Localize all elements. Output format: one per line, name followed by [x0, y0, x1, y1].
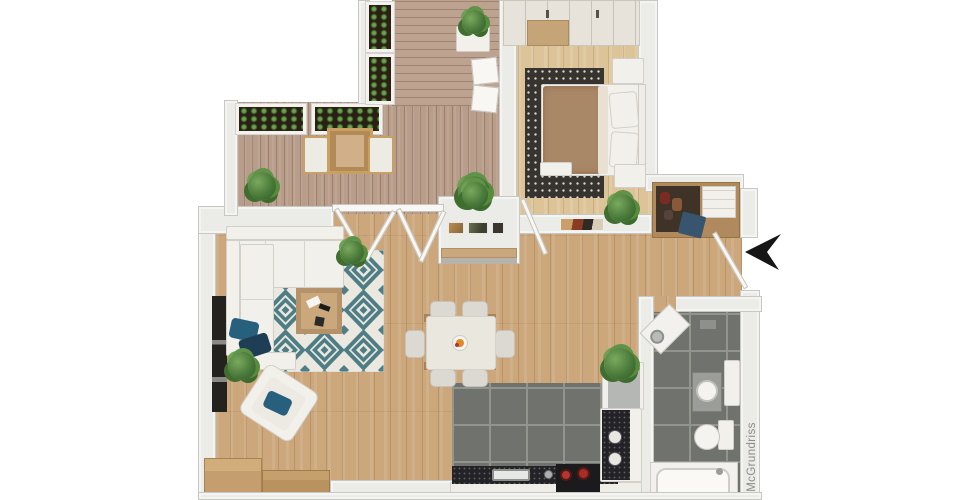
art-frame-2 — [468, 222, 488, 234]
art-frame-1 — [448, 222, 464, 234]
hall-plant — [608, 194, 636, 222]
bathroom-tall-cabinet — [724, 360, 740, 406]
toilet-bowl — [694, 424, 720, 450]
stove-pot-2 — [577, 467, 590, 480]
art-frame-3 — [492, 222, 504, 234]
washing-machine-drum — [647, 327, 667, 347]
bedroom-window-leaf-2 — [471, 85, 500, 114]
nightstand-top — [612, 58, 644, 84]
entry-clothes-1 — [660, 192, 670, 204]
planter-box-3 — [366, 2, 394, 52]
bed-headboard — [638, 84, 646, 176]
dining-chair-5 — [405, 330, 425, 358]
dining-chair-6 — [495, 330, 515, 358]
terrace-plant-1 — [248, 172, 276, 200]
dining-chair-4 — [462, 369, 488, 387]
stove-pot-1 — [560, 469, 572, 481]
north-arrow-icon — [744, 233, 782, 271]
living-plant-3 — [462, 182, 488, 208]
coffee-table — [296, 288, 342, 334]
toilet-tank — [718, 420, 734, 450]
vanity-basin — [696, 380, 718, 402]
tv-media-unit — [212, 296, 227, 412]
bathroom-shelf — [700, 320, 716, 329]
pot-lid — [544, 470, 553, 479]
kitchen-counter-right-top — [602, 410, 630, 480]
folding-door-rail — [332, 204, 444, 212]
counter-sink-bowl-2 — [608, 452, 622, 466]
hall-art-frame — [560, 218, 604, 231]
bottom-wall — [198, 492, 762, 500]
entry-clothes-3 — [664, 210, 673, 220]
wardrobe — [503, 0, 640, 46]
bed-sheet-fold — [598, 86, 608, 174]
partition-sideboard-base — [441, 258, 517, 264]
shoe-rack — [702, 186, 736, 218]
coffee-table-remote — [318, 303, 330, 311]
bistro-table — [327, 128, 373, 174]
sofa-back-horizontal — [226, 226, 344, 240]
coffee-table-item — [314, 316, 324, 326]
bistro-chair-right — [368, 136, 394, 174]
bistro-chair-left — [303, 136, 329, 174]
bed-duvet — [543, 86, 603, 174]
nightstand-bottom — [614, 164, 646, 188]
bed-pillow-1 — [608, 91, 639, 129]
kitchen-plant — [604, 348, 636, 380]
terrace-potted-plant — [462, 10, 486, 34]
wardrobe-handle-2 — [596, 10, 599, 18]
watermark: McGrundriss — [745, 407, 759, 500]
partition-sideboard-top — [441, 248, 517, 258]
bed-bench — [540, 162, 572, 176]
fruit-bowl-apple — [455, 343, 459, 347]
planter-box-1 — [236, 104, 306, 134]
kitchen-sink — [492, 469, 530, 481]
dining-chair-3 — [430, 369, 456, 387]
planter-box-4 — [366, 54, 394, 104]
bistro-table-top — [336, 135, 364, 167]
entry-right-wall — [740, 188, 758, 238]
wardrobe-wood-shelf — [527, 20, 569, 46]
counter-sink-bowl-1 — [608, 430, 622, 444]
floorplan-render: McGrundriss — [0, 0, 960, 500]
wardrobe-handle-1 — [546, 10, 549, 18]
living-plant-2 — [340, 240, 364, 264]
entry-clothes-2 — [672, 198, 682, 211]
living-plant-1 — [228, 352, 256, 380]
bathtub-faucet — [716, 468, 723, 475]
bedroom-window-leaf-1 — [471, 57, 500, 86]
